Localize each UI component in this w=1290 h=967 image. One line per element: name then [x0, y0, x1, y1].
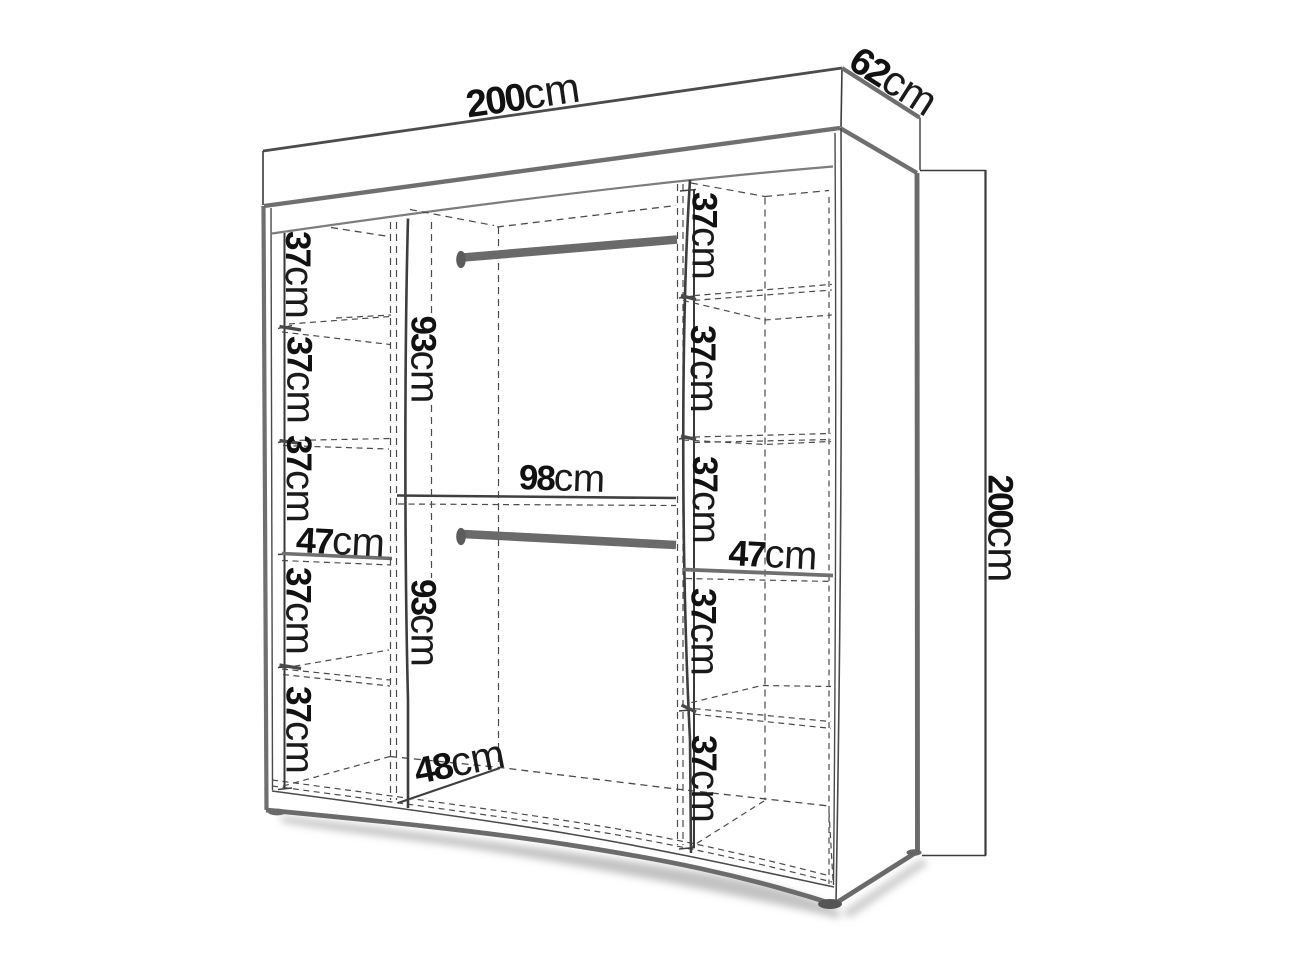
svg-text:37cm: 37cm: [683, 588, 727, 675]
svg-text:93cm: 93cm: [403, 316, 447, 403]
svg-text:93cm: 93cm: [403, 579, 447, 666]
svg-text:37cm: 37cm: [278, 435, 322, 522]
svg-text:37cm: 37cm: [683, 735, 727, 822]
svg-text:62cm: 62cm: [842, 35, 946, 125]
svg-text:200cm: 200cm: [463, 64, 583, 128]
svg-text:200cm: 200cm: [980, 475, 1027, 582]
svg-text:47cm: 47cm: [295, 517, 385, 566]
svg-text:48cm: 48cm: [410, 730, 508, 793]
svg-text:47cm: 47cm: [728, 530, 818, 579]
svg-text:37cm: 37cm: [279, 336, 323, 423]
svg-text:37cm: 37cm: [684, 192, 728, 279]
svg-text:37cm: 37cm: [278, 567, 322, 654]
svg-text:37cm: 37cm: [277, 231, 321, 318]
svg-text:37cm: 37cm: [684, 456, 728, 543]
svg-text:98cm: 98cm: [518, 455, 605, 501]
svg-text:37cm: 37cm: [278, 686, 322, 773]
svg-text:37cm: 37cm: [682, 325, 726, 412]
